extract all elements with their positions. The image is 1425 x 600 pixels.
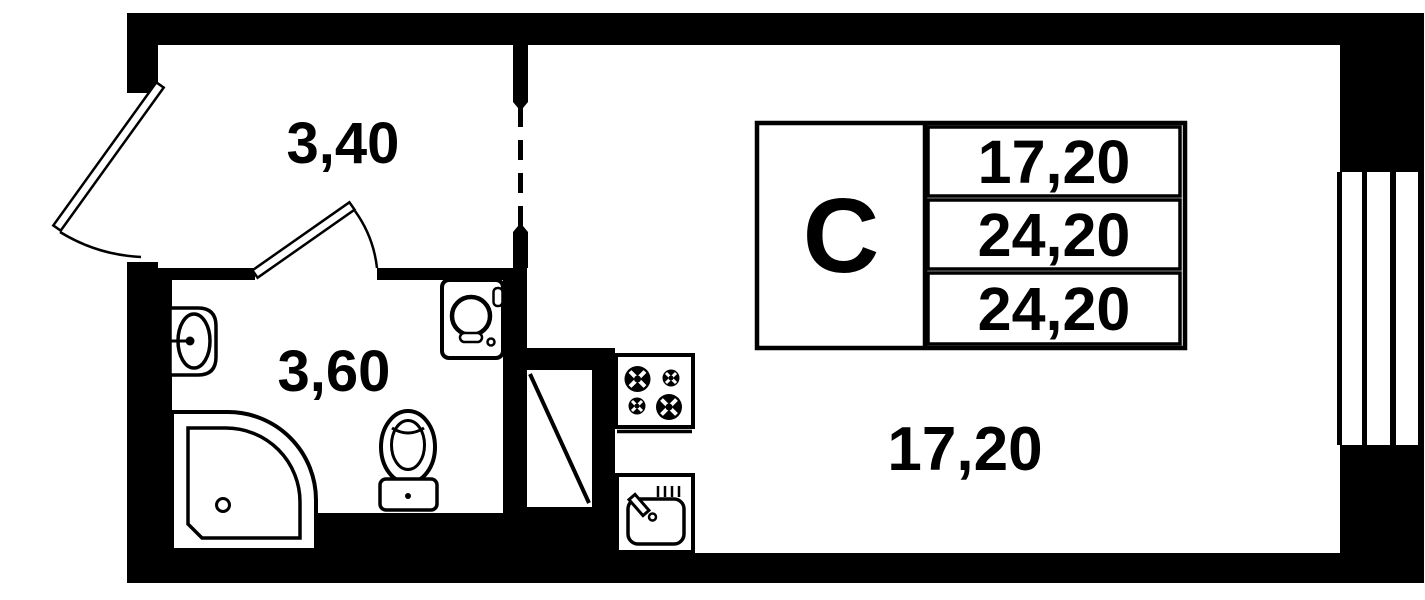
entry-door-icon bbox=[53, 82, 163, 257]
right-wall-lower bbox=[1340, 445, 1424, 583]
floor-plan-canvas: С 17,20 24,20 24,20 3,40 3,60 17,20 bbox=[0, 0, 1425, 600]
entry-door-leaf bbox=[53, 82, 163, 230]
kitchen-sink-faucet-dot bbox=[649, 514, 656, 521]
entry-door-swing-arc bbox=[60, 232, 141, 257]
washer-drawer bbox=[494, 288, 503, 306]
bathroom-right-wall bbox=[503, 268, 527, 513]
left-wall-lower bbox=[127, 262, 158, 583]
hall-bath-wall-left bbox=[158, 268, 255, 280]
stove-body bbox=[616, 355, 693, 427]
window-line-3 bbox=[1390, 172, 1396, 445]
right-wall-upper bbox=[1340, 13, 1424, 172]
ventilation-shaft-icon bbox=[527, 370, 592, 507]
washer-drum bbox=[452, 297, 490, 335]
shaft-right-wall bbox=[592, 370, 615, 507]
floor-plan: С 17,20 24,20 24,20 3,40 3,60 17,20 bbox=[0, 0, 1425, 600]
shower-tray-icon bbox=[172, 412, 316, 550]
toilet-icon bbox=[380, 411, 437, 510]
top-wall bbox=[127, 13, 1424, 45]
washer-tray bbox=[460, 333, 482, 342]
stamp-row-1-value: 17,20 bbox=[978, 128, 1131, 196]
washing-machine-icon bbox=[442, 280, 503, 358]
window-line-2 bbox=[1362, 172, 1367, 445]
partition-stub-bottom bbox=[513, 232, 528, 268]
stove-burner-large-2 bbox=[656, 394, 682, 420]
toilet-tank-button bbox=[405, 493, 411, 499]
room-label-hallway: 3,40 bbox=[287, 111, 400, 176]
bathroom-door-icon bbox=[252, 202, 377, 277]
stamp-type-letter: С bbox=[803, 177, 880, 295]
stove-icon bbox=[616, 355, 693, 432]
stamp-row-3-value: 24,20 bbox=[978, 275, 1131, 343]
partition-stub-top bbox=[513, 45, 528, 102]
shower-drain bbox=[217, 499, 230, 512]
stove-burner-large-1 bbox=[625, 366, 651, 392]
stove-burner-small-1 bbox=[663, 370, 680, 387]
kitchen-sink-icon bbox=[617, 475, 693, 552]
left-wall-upper bbox=[127, 13, 158, 93]
bathroom-door-swing-arc bbox=[355, 211, 377, 268]
stamp-row-2-value: 24,20 bbox=[978, 201, 1131, 269]
bath-sink-icon bbox=[168, 308, 216, 375]
stove-burner-small-2 bbox=[629, 398, 646, 415]
area-stamp: С 17,20 24,20 24,20 bbox=[757, 123, 1185, 348]
window-line-4 bbox=[1418, 172, 1424, 445]
bathroom-door-leaf bbox=[252, 202, 354, 277]
shaft-bottom-block bbox=[503, 507, 615, 583]
room-label-bathroom: 3,60 bbox=[278, 339, 391, 404]
window-icon bbox=[1337, 172, 1424, 445]
room-label-living-room: 17,20 bbox=[887, 415, 1042, 484]
walls bbox=[127, 13, 1424, 583]
window-line-1 bbox=[1337, 172, 1342, 445]
washer-knob bbox=[488, 339, 495, 346]
shaft-top-wall bbox=[527, 348, 615, 370]
bath-sink-faucet-dot bbox=[186, 337, 195, 346]
